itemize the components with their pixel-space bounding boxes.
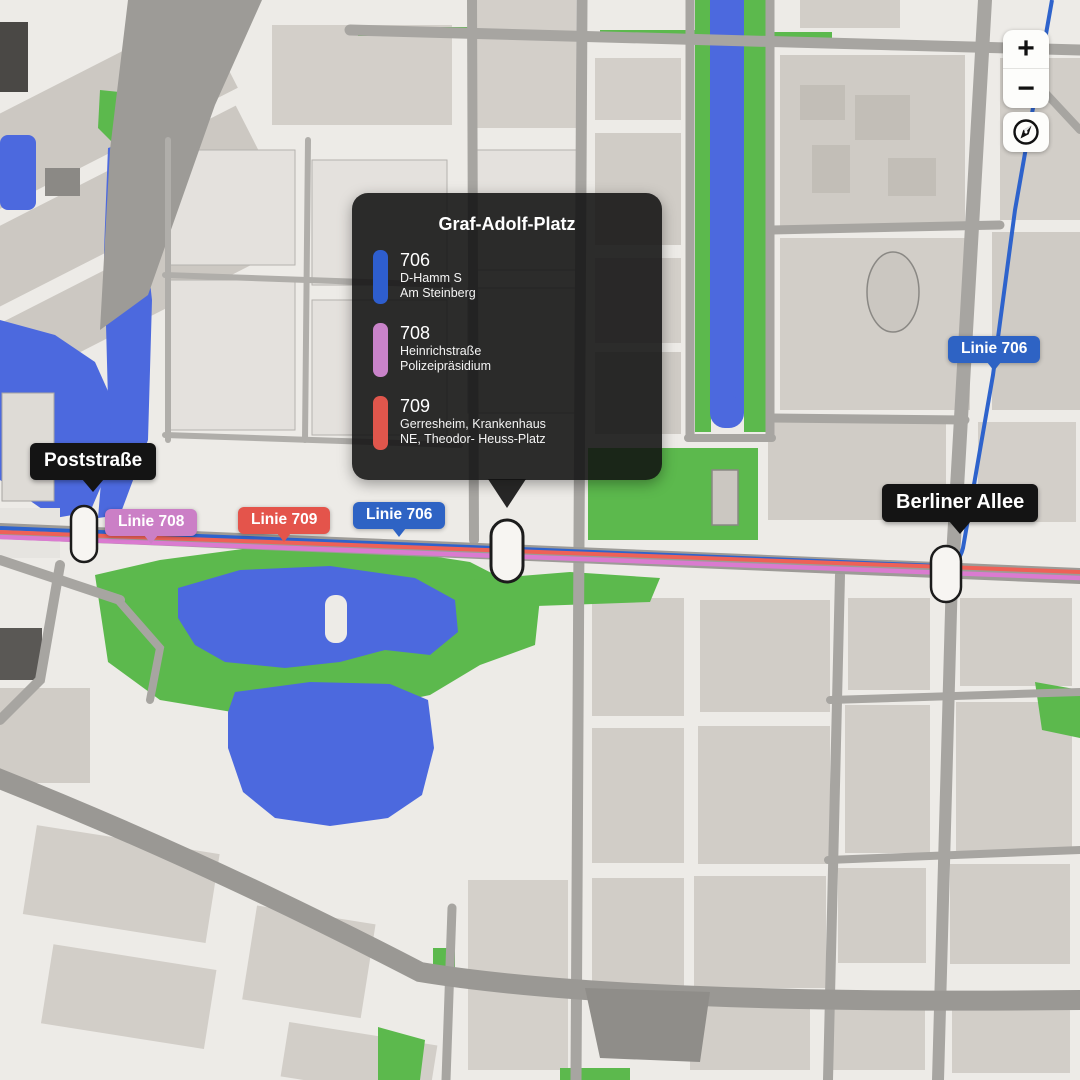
station-popup: Graf-Adolf-Platz 706 D-Hamm S Am Steinbe… <box>352 193 662 480</box>
popup-pointer <box>488 479 526 508</box>
map-viewport[interactable]: Poststraße Berliner Allee Linie 708 Lini… <box>0 0 1080 1080</box>
label-pointer <box>82 479 104 492</box>
line-color-bar-708 <box>373 323 388 377</box>
zoom-out-button[interactable]: − <box>1003 69 1049 108</box>
line-color-bar-709 <box>373 396 388 450</box>
line-badge-709[interactable]: Linie 709 <box>238 507 330 534</box>
line-destination: D-Hamm S <box>400 271 476 287</box>
compass-button[interactable] <box>1003 112 1049 152</box>
badge-pointer <box>277 533 291 542</box>
map-canvas[interactable] <box>0 0 1080 1080</box>
line-number: 708 <box>400 323 491 344</box>
line-badge-706-north[interactable]: Linie 706 <box>948 336 1040 363</box>
station-label-poststrasse[interactable]: Poststraße <box>30 443 156 480</box>
line-badge-text: Linie 709 <box>251 511 317 528</box>
badge-pointer <box>392 528 406 537</box>
compass-icon <box>1012 118 1040 146</box>
zoom-in-button[interactable]: + <box>1003 30 1049 69</box>
line-destination: Polizeipräsidium <box>400 359 491 375</box>
popup-line-708: 708 Heinrichstraße Polizeipräsidium <box>373 323 642 377</box>
label-pointer <box>949 521 971 534</box>
station-marker-graf-adolf-platz[interactable] <box>491 520 523 582</box>
line-destination: Gerresheim, Krankenhaus <box>400 417 546 433</box>
popup-line-709: 709 Gerresheim, Krankenhaus NE, Theodor-… <box>373 396 642 450</box>
line-badge-text: Linie 706 <box>366 506 432 523</box>
popup-line-list: 706 D-Hamm S Am Steinberg 708 Heinrichst… <box>352 235 662 450</box>
station-label-text: Berliner Allee <box>896 491 1024 513</box>
popup-line-706: 706 D-Hamm S Am Steinberg <box>373 250 642 304</box>
line-destination: Am Steinberg <box>400 286 476 302</box>
line-badge-text: Linie 708 <box>118 513 184 530</box>
station-marker-berliner-allee[interactable] <box>931 546 961 602</box>
line-number: 706 <box>400 250 476 271</box>
line-badge-708[interactable]: Linie 708 <box>105 509 197 536</box>
line-badge-706-west[interactable]: Linie 706 <box>353 502 445 529</box>
line-color-bar-706 <box>373 250 388 304</box>
badge-pointer <box>144 535 158 544</box>
badge-pointer <box>987 362 1001 371</box>
line-destination: NE, Theodor- Heuss-Platz <box>400 432 546 448</box>
pond-island <box>325 595 347 643</box>
line-badge-text: Linie 706 <box>961 340 1027 357</box>
line-destination: Heinrichstraße <box>400 344 491 360</box>
popup-title: Graf-Adolf-Platz <box>352 214 662 235</box>
station-label-berliner-allee[interactable]: Berliner Allee <box>882 484 1038 522</box>
zoom-control: + − <box>1003 30 1049 108</box>
line-number: 709 <box>400 396 546 417</box>
station-label-text: Poststraße <box>44 450 142 471</box>
station-marker-poststrasse[interactable] <box>71 506 97 562</box>
